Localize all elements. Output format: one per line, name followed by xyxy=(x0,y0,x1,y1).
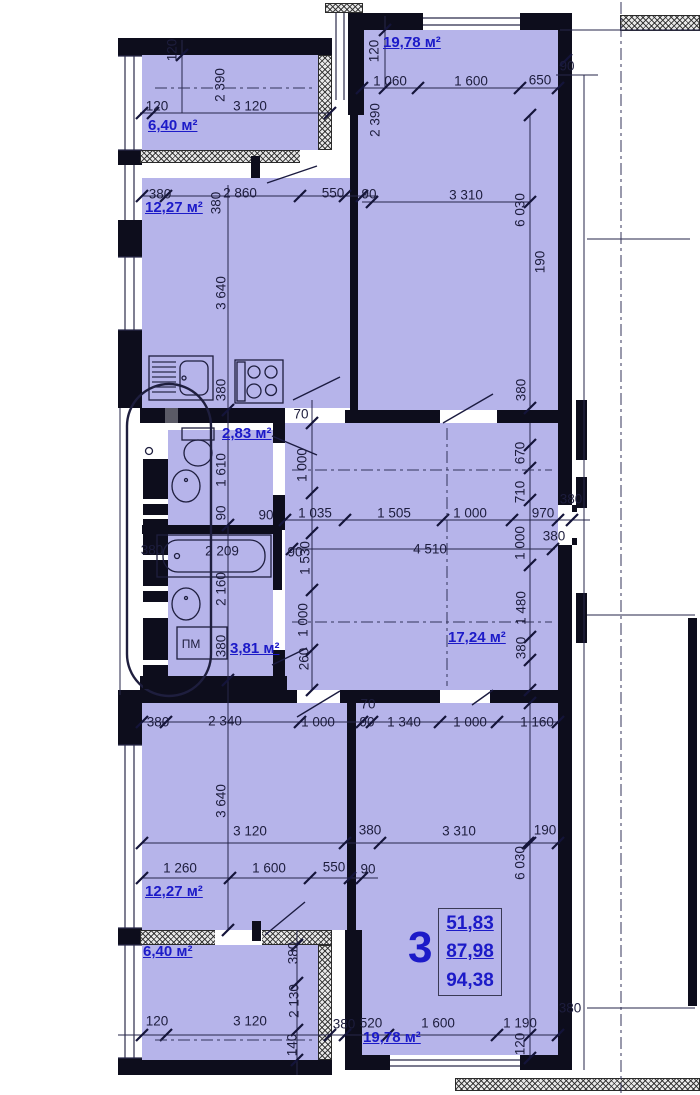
dimension-label: 3 640 xyxy=(214,784,228,818)
room-area-label-kitchen: 12,27 м² xyxy=(145,200,203,215)
dimension-label: 3 120 xyxy=(233,99,267,113)
dimension-label: 650 xyxy=(529,73,552,87)
labels-layer: 1202 3901203 1201201 0601 600650902 3909… xyxy=(0,0,700,1095)
dimension-label: 120 xyxy=(367,40,381,63)
dimension-label: 1 190 xyxy=(503,1016,537,1030)
appliance-label-washing-machine: ПМ xyxy=(182,638,201,650)
dimension-label: 970 xyxy=(532,506,555,520)
dimension-label: 380 xyxy=(514,379,528,402)
dimension-label: 1 060 xyxy=(373,74,407,88)
room-area-label-bathroom: 3,81 м² xyxy=(230,641,279,656)
living-area-value: 51,83 xyxy=(446,914,494,933)
dimension-label: 2 860 xyxy=(223,186,257,200)
dimension-label: 190 xyxy=(534,823,557,837)
dimension-label: 380 xyxy=(543,529,566,543)
dimension-label: 90 xyxy=(359,715,374,729)
dimension-label: 380 xyxy=(141,543,164,557)
room-area-label-wc: 2,83 м² xyxy=(222,426,271,441)
dimension-label: 550 xyxy=(322,186,345,200)
dimension-label: 1 600 xyxy=(252,861,286,875)
dimension-label: 70 xyxy=(293,407,308,421)
dimension-label: 710 xyxy=(513,481,527,504)
rooms-count: 3 xyxy=(408,926,432,970)
dimension-label: 2 160 xyxy=(214,572,228,606)
dimension-label: 380 xyxy=(560,492,583,506)
dimension-label: 90 xyxy=(214,505,228,520)
dimension-label: 140 xyxy=(285,1034,299,1057)
dimension-label: 380 xyxy=(359,823,382,837)
floor-plan: 1202 3901203 1201201 0601 600650902 3909… xyxy=(0,0,700,1095)
dimension-label: 1 260 xyxy=(163,861,197,875)
room-area-label-room-bottom-left: 12,27 м² xyxy=(145,884,203,899)
dimension-label: 1 000 xyxy=(296,603,310,637)
dimension-label: 1 480 xyxy=(514,591,528,625)
dimension-label: 2 390 xyxy=(368,103,382,137)
total-area-value: 94,38 xyxy=(446,971,494,990)
dimension-label: 260 xyxy=(297,648,311,671)
dimension-label: 1 000 xyxy=(453,715,487,729)
dimension-label: 1 610 xyxy=(214,453,228,487)
dimension-label: 380 xyxy=(209,192,223,215)
dimension-label: 1 000 xyxy=(453,506,487,520)
dimension-label: 120 xyxy=(513,1033,527,1056)
dimension-label: 380 xyxy=(333,1017,356,1031)
dimension-label: 2 390 xyxy=(213,68,227,102)
dimension-label: 380 xyxy=(559,1001,582,1015)
dimension-label: 120 xyxy=(146,1014,169,1028)
dimension-label: 520 xyxy=(360,1016,383,1030)
area-summary-box: 51,83 87,98 94,38 xyxy=(438,908,502,996)
dimension-label: 3 310 xyxy=(442,824,476,838)
dimension-label: 1 000 xyxy=(295,448,309,482)
room-area-label-bedroom-top: 19,78 м² xyxy=(383,35,441,50)
dimension-label: 1 600 xyxy=(454,74,488,88)
room-area-label-loggia-top: 6,40 м² xyxy=(148,118,197,133)
dimension-label: 2 130 xyxy=(287,984,301,1018)
dimension-label: 90 xyxy=(360,862,375,876)
dimension-label: 380 xyxy=(147,715,170,729)
dimension-label: 3 120 xyxy=(233,824,267,838)
dimension-label: 4 510 xyxy=(413,542,447,556)
dimension-label: 380 xyxy=(286,942,300,965)
dimension-label: 3 310 xyxy=(449,188,483,202)
dimension-label: 380 xyxy=(214,635,228,658)
room-area-label-loggia-bottom: 6,40 м² xyxy=(143,944,192,959)
dimension-label: 1 340 xyxy=(387,715,421,729)
apartment-area-value: 87,98 xyxy=(446,942,494,961)
dimension-label: 1 160 xyxy=(520,715,554,729)
dimension-label: 120 xyxy=(165,39,179,62)
dimension-label: 1 530 xyxy=(298,541,312,575)
dimension-label: 90 xyxy=(361,187,376,201)
dimension-label: 1 035 xyxy=(298,506,332,520)
dimension-label: 1 600 xyxy=(421,1016,455,1030)
dimension-label: 120 xyxy=(146,99,169,113)
dimension-label: 6 030 xyxy=(513,846,527,880)
dimension-label: 3 640 xyxy=(214,276,228,310)
dimension-label: 380 xyxy=(214,379,228,402)
dimension-label: 670 xyxy=(513,442,527,465)
dimension-label: 6 030 xyxy=(513,193,527,227)
dimension-label: 1 000 xyxy=(513,526,527,560)
dimension-label: 3 120 xyxy=(233,1014,267,1028)
dimension-label: 2 209 xyxy=(205,544,239,558)
dimension-label: 70 xyxy=(360,697,375,711)
dimension-label: 90 xyxy=(258,508,273,522)
dimension-label: 1 505 xyxy=(377,506,411,520)
room-area-label-hall: 17,24 м² xyxy=(448,630,506,645)
dimension-label: 380 xyxy=(514,637,528,660)
dimension-label: 190 xyxy=(533,251,547,274)
room-area-label-room-bottom-right: 19,78 м² xyxy=(363,1030,421,1045)
dimension-label: 1 000 xyxy=(301,715,335,729)
dimension-label: 90 xyxy=(559,59,574,73)
dimension-label: 2 340 xyxy=(208,714,242,728)
dimension-label: 550 xyxy=(323,860,346,874)
